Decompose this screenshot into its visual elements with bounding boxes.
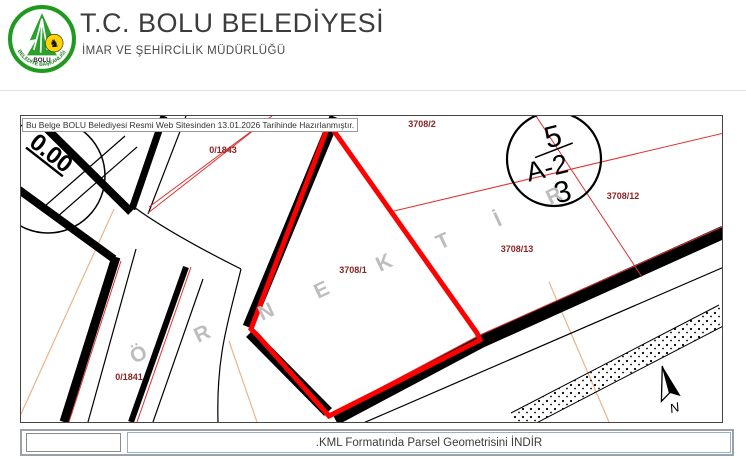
footer-bar: .KML Formatında Parsel Geometrisini İNDİ… — [20, 429, 734, 456]
parcel-map[interactable]: 0.00 5 A-2 3 Ö R N E K T — [20, 115, 723, 423]
header-divider — [0, 90, 746, 91]
municipality-logo-icon: ♞ BOLU BELEDİYE BAŞKANLIĞI — [8, 5, 76, 73]
label-3708-2: 3708/2 — [408, 119, 436, 129]
north-arrow-icon: N — [653, 363, 686, 417]
footer-empty-box — [26, 433, 121, 452]
label-3708-12: 3708/12 — [607, 191, 640, 201]
label-3708-13: 3708/13 — [501, 244, 534, 254]
page-subtitle: İMAR VE ŞEHİRCİLİK MÜDÜRLÜĞÜ — [82, 45, 286, 57]
page-title: T.C. BOLU BELEDİYESİ — [80, 8, 384, 39]
svg-text:Ö: Ö — [126, 341, 151, 369]
page: ♞ BOLU BELEDİYE BAŞKANLIĞI T.C. BOLU BEL… — [0, 0, 746, 459]
svg-text:N: N — [254, 298, 277, 325]
svg-text:T: T — [432, 228, 454, 254]
svg-text:İ: İ — [490, 208, 505, 231]
label-3708-1: 3708/1 — [339, 265, 367, 275]
watermark-ornektir: Ö R N E K T İ R — [126, 182, 565, 368]
label-0-1841: 0/1841 — [115, 372, 143, 382]
svg-text:♞: ♞ — [49, 38, 59, 50]
dimension-label: 0.00 — [24, 128, 77, 178]
parcel-map-canvas[interactable]: 0.00 5 A-2 3 Ö R N E K T — [21, 116, 722, 422]
north-label: N — [668, 399, 682, 416]
stippled-road — [511, 305, 722, 422]
svg-text:E: E — [310, 277, 332, 304]
label-0-1843: 0/1843 — [209, 145, 237, 155]
document-notice: Bu Belge BOLU Belediyesi Resmi Web Sites… — [22, 118, 358, 132]
svg-text:K: K — [372, 249, 395, 276]
svg-text:R: R — [190, 320, 213, 347]
orange-boundary-lines — [21, 209, 609, 422]
kml-download-button[interactable]: .KML Formatında Parsel Geometrisini İNDİ… — [127, 432, 731, 453]
header: ♞ BOLU BELEDİYE BAŞKANLIĞI T.C. BOLU BEL… — [0, 0, 746, 90]
